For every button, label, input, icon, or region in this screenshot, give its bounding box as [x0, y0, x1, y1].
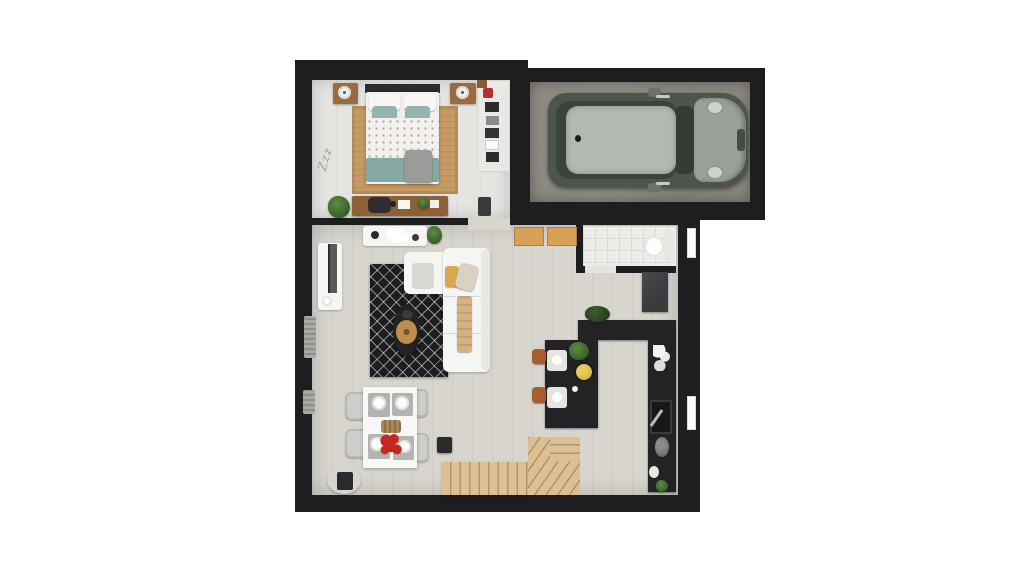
car — [548, 93, 748, 187]
island-small-dish — [572, 386, 578, 392]
sofa-blanket-tan — [457, 296, 472, 352]
sofa-chaise-cushion — [412, 263, 434, 289]
car-headlight-top — [706, 100, 724, 115]
bedroom-door-opening — [468, 218, 510, 230]
bar-stool-lower — [532, 387, 546, 403]
side-table-lamp — [337, 472, 353, 490]
lemon-bowl — [576, 364, 592, 380]
console-bowl-dark-2 — [412, 234, 419, 241]
bathroom-left-wall — [576, 220, 583, 266]
entry-cube-right — [547, 227, 577, 246]
nightstand-right-lamp — [456, 86, 469, 99]
black-cube-table — [437, 437, 452, 453]
staircase-straight-flight — [442, 462, 528, 495]
counter-bowl — [649, 466, 659, 478]
coffee-table-bowl — [402, 310, 413, 319]
island-plate-upper — [550, 353, 564, 367]
bedroom-door-leaf — [478, 197, 491, 216]
console-plant — [427, 226, 442, 244]
car-grille — [737, 129, 745, 151]
desk-plant — [418, 198, 429, 209]
radiator-lower — [303, 390, 315, 414]
bedroom-plant — [328, 196, 350, 218]
coffee-table-tray — [396, 320, 417, 344]
radiator-upper — [304, 316, 316, 358]
car-door-handle-top — [656, 95, 670, 98]
plate-top-left — [372, 396, 386, 410]
kitchen-faucet-set — [653, 345, 670, 371]
desk-papers — [398, 200, 410, 209]
island-plate-lower — [550, 390, 564, 404]
toilet-bowl — [644, 236, 664, 257]
wardrobe-item-box — [477, 80, 487, 88]
kitchen-plant-small — [656, 480, 668, 492]
tv-console-decor — [322, 296, 332, 306]
counter-pot — [655, 437, 669, 457]
entry-cube-left — [514, 227, 544, 246]
counter-plant — [585, 306, 610, 322]
desk-chair — [368, 197, 391, 213]
window-right-upper — [687, 228, 696, 258]
toilet-tank — [664, 233, 674, 260]
desk-cup — [390, 201, 396, 207]
wardrobe-item-red — [483, 88, 493, 98]
nightstand-left-lamp — [338, 86, 351, 99]
bathroom-door-marker — [585, 266, 616, 273]
car-headlight-bottom — [706, 165, 724, 180]
car-windshield — [676, 106, 694, 174]
bed-gray-blanket — [405, 150, 432, 183]
sofa-backrest — [481, 250, 490, 370]
wardrobe-item-white — [486, 141, 498, 149]
wardrobe-item-dark-3 — [486, 152, 499, 162]
island-plant — [569, 342, 589, 360]
window-right-lower — [687, 396, 696, 430]
staircase-upper-flight — [550, 437, 580, 461]
car-door-handle-bottom — [656, 182, 670, 185]
console-cups — [386, 229, 408, 243]
desk-notes — [430, 200, 439, 208]
tv — [328, 244, 337, 293]
wardrobe-item-gray — [486, 116, 499, 125]
plate-top-right — [395, 396, 409, 410]
car-antenna — [575, 135, 581, 142]
console-bowl-dark — [371, 231, 379, 239]
bar-stool-upper — [532, 349, 546, 364]
kitchen-counter-top-arm — [578, 320, 676, 340]
kitchen-sink — [650, 400, 672, 434]
refrigerator — [642, 272, 668, 312]
car-roof — [566, 106, 676, 174]
wardrobe-item-dark-2 — [485, 128, 499, 138]
flower-centerpiece — [379, 432, 403, 457]
wardrobe-item-dark-1 — [485, 102, 499, 112]
floor-plan-canvas: Zzz — [0, 0, 1024, 576]
